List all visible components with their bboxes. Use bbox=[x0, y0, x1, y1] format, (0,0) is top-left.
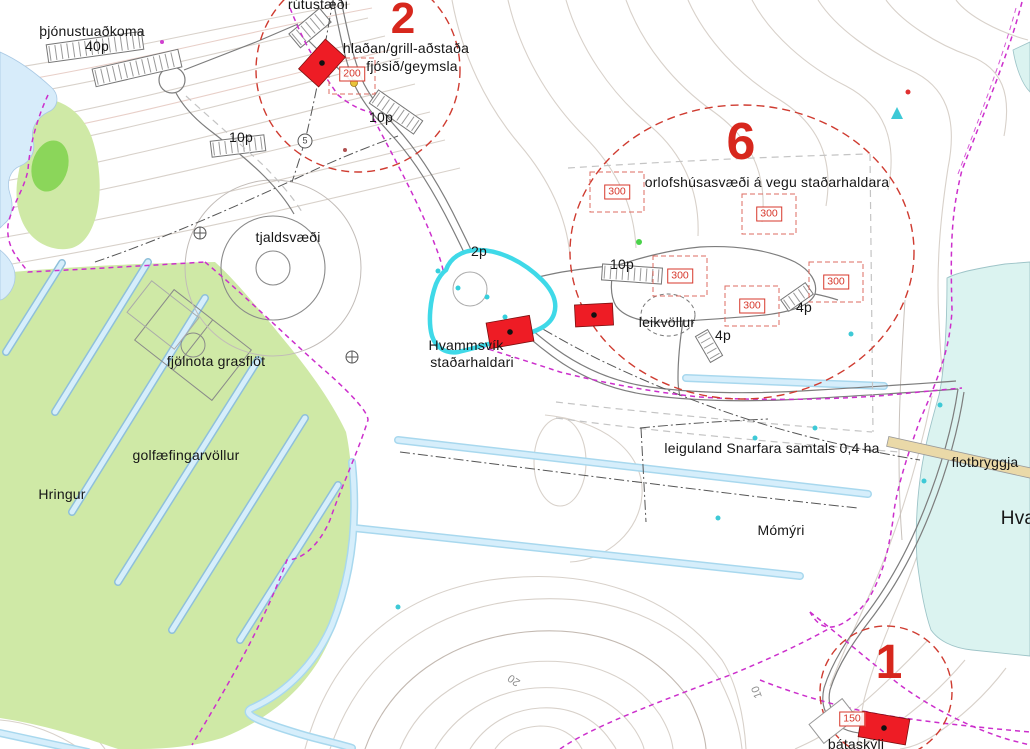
label-floating-dock: flotbryggja bbox=[952, 454, 1019, 470]
brown-point-icon bbox=[343, 148, 347, 152]
label-service-access-capacity: 40p bbox=[85, 38, 109, 54]
marker-300-b: 300 bbox=[756, 207, 782, 222]
crossed-circle-icon bbox=[194, 227, 206, 239]
label-bus-parking: rútustæði bbox=[288, 0, 348, 12]
marker-300-d: 300 bbox=[823, 275, 849, 290]
marker-150: 150 bbox=[839, 712, 865, 727]
label-manager-line2: staðarhaldari bbox=[430, 354, 514, 370]
label-campsite: tjaldsvæði bbox=[255, 229, 320, 245]
magenta-point-icon bbox=[160, 40, 164, 44]
label-hringur: Hringur bbox=[38, 486, 85, 502]
buildings bbox=[299, 39, 910, 745]
label-parking-2p: 2p bbox=[471, 243, 487, 259]
label-survey-point: 5 bbox=[302, 137, 307, 146]
green-point-icon bbox=[636, 239, 642, 245]
size-marker-dashed-boxes bbox=[329, 58, 863, 326]
label-cowshed-storage: fjósið/geymsla bbox=[366, 58, 458, 74]
label-area2-number: 2 bbox=[391, 0, 415, 41]
label-area1-number: 1 bbox=[876, 639, 903, 687]
red-point-icon bbox=[906, 90, 911, 95]
label-area6-number: 6 bbox=[727, 116, 756, 168]
label-bay-name: Hva bbox=[1001, 508, 1030, 530]
label-barn-grill: hlaðan/grill-aðstaða bbox=[343, 40, 469, 56]
crossed-circle-icon-2 bbox=[346, 351, 358, 363]
marker-200: 200 bbox=[339, 67, 365, 82]
label-leased-land: leiguland Snarfara samtals 0,4 ha bbox=[664, 440, 879, 456]
label-parking-west: 10p bbox=[229, 129, 253, 145]
label-service-access: þjónustuaðkoma bbox=[39, 23, 145, 39]
planning-map: þjónustuaðkoma 40p rútustæði 2 hlaðan/gr… bbox=[0, 0, 1030, 749]
label-multiuse-field: fjölnota grasflöt bbox=[167, 353, 265, 369]
building-holiday bbox=[574, 303, 613, 327]
label-boat-shelter: bátaskýli bbox=[828, 736, 884, 749]
marker-300-c: 300 bbox=[667, 269, 693, 284]
label-parking-north: 10p bbox=[369, 109, 393, 125]
label-parking-mid: 10p bbox=[610, 256, 634, 272]
label-manager-line1: Hvammsvík bbox=[429, 337, 504, 353]
beacon-triangle-icon bbox=[891, 107, 903, 119]
label-playground: leikvöllur bbox=[639, 314, 695, 330]
marker-300-e: 300 bbox=[739, 299, 765, 314]
marker-300-a: 300 bbox=[604, 185, 630, 200]
label-parking-4p-east: 4p bbox=[796, 299, 812, 315]
label-parking-4p-south: 4p bbox=[715, 327, 731, 343]
label-momyri: Mómýri bbox=[757, 522, 804, 538]
label-holiday-homes: orlofshúsasvæði á vegu staðarhaldara bbox=[645, 174, 890, 190]
label-golf-practice: golfæfingarvöllur bbox=[133, 447, 240, 463]
